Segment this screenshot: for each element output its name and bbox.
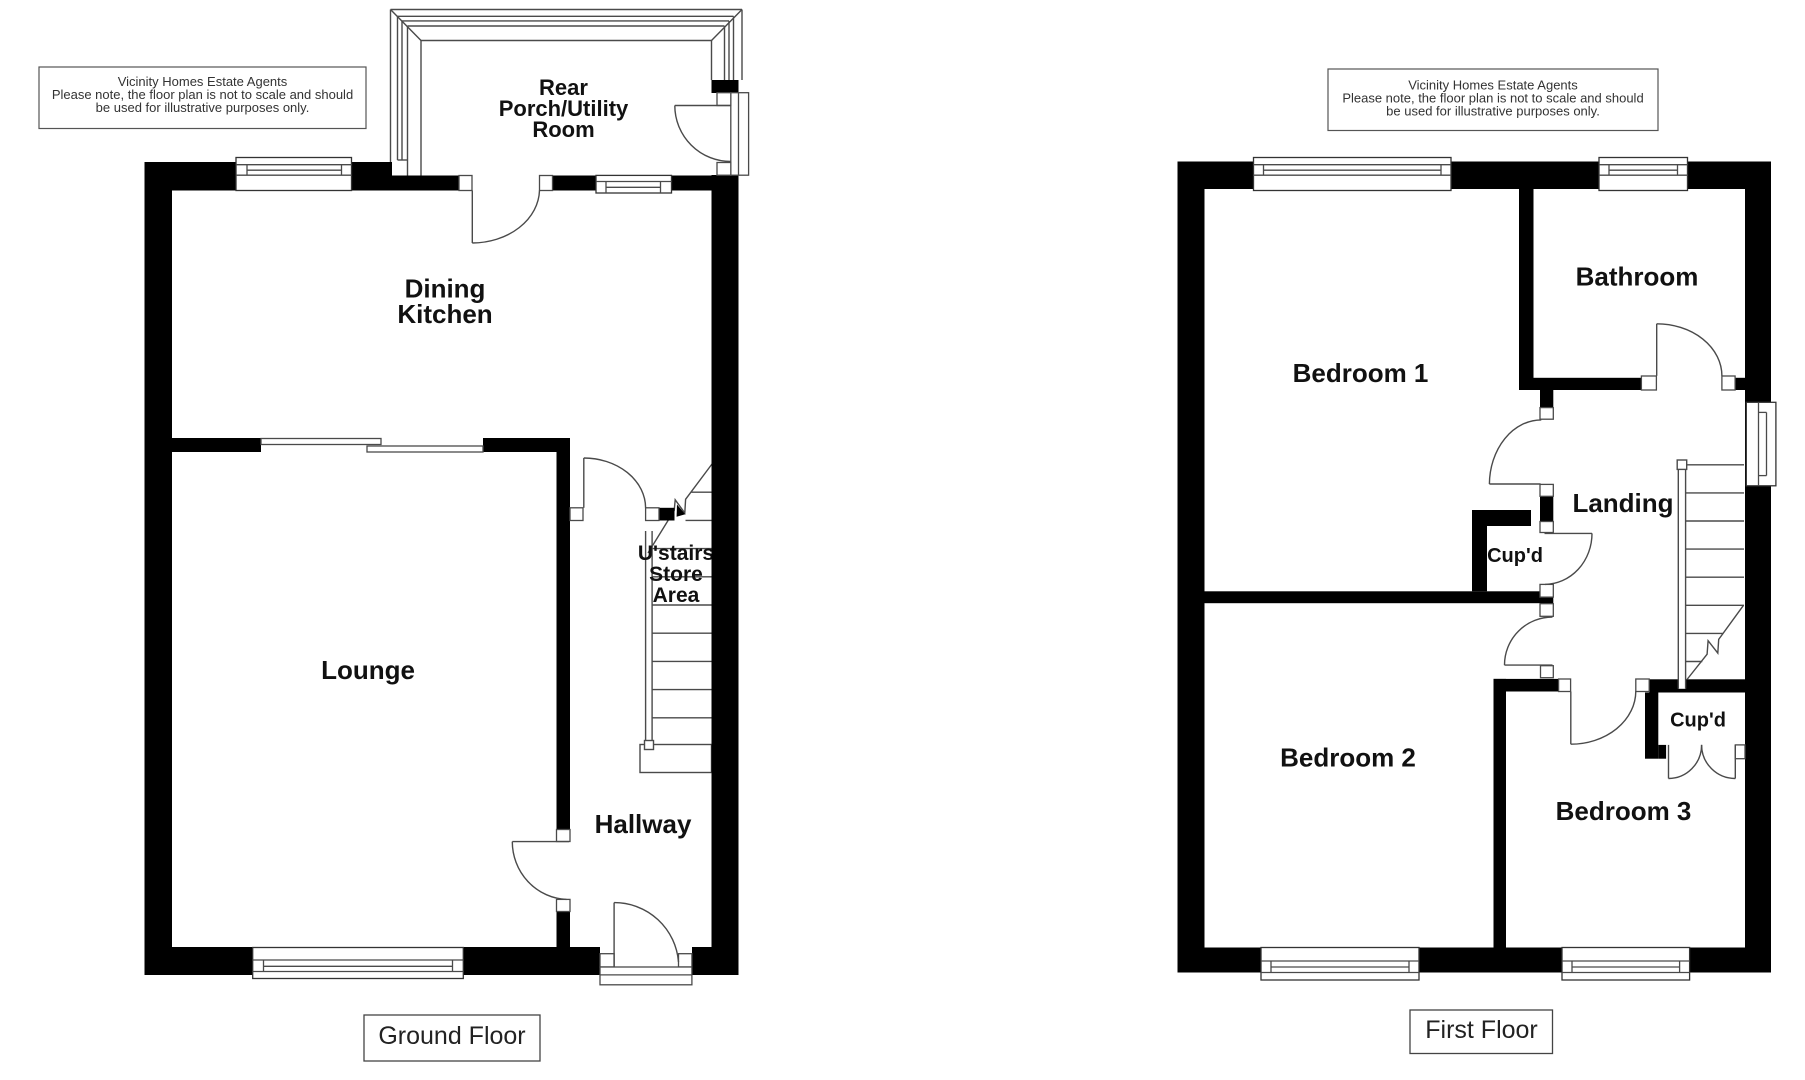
svg-text:Lounge: Lounge: [321, 655, 415, 685]
svg-text:Ground Floor: Ground Floor: [378, 1022, 525, 1050]
svg-text:Cup'd: Cup'd: [1670, 710, 1726, 732]
svg-text:Cup'd: Cup'd: [1487, 545, 1543, 567]
svg-text:U'stairs: U'stairs: [638, 542, 714, 565]
svg-text:be used for illustrative purpo: be used for illustrative purposes only.: [96, 100, 310, 115]
svg-text:Bathroom: Bathroom: [1576, 262, 1699, 292]
svg-text:be used for illustrative purpo: be used for illustrative purposes only.: [1386, 104, 1600, 119]
svg-text:Area: Area: [653, 584, 700, 607]
svg-text:Bedroom 2: Bedroom 2: [1280, 743, 1416, 773]
svg-text:Bedroom 3: Bedroom 3: [1556, 796, 1692, 826]
svg-text:First Floor: First Floor: [1425, 1016, 1538, 1044]
svg-text:Kitchen: Kitchen: [397, 299, 492, 329]
svg-text:Landing: Landing: [1572, 488, 1673, 518]
svg-text:Store: Store: [649, 563, 703, 586]
svg-text:Room: Room: [532, 117, 594, 142]
svg-text:Hallway: Hallway: [595, 809, 692, 839]
svg-text:Bedroom 1: Bedroom 1: [1293, 358, 1429, 388]
